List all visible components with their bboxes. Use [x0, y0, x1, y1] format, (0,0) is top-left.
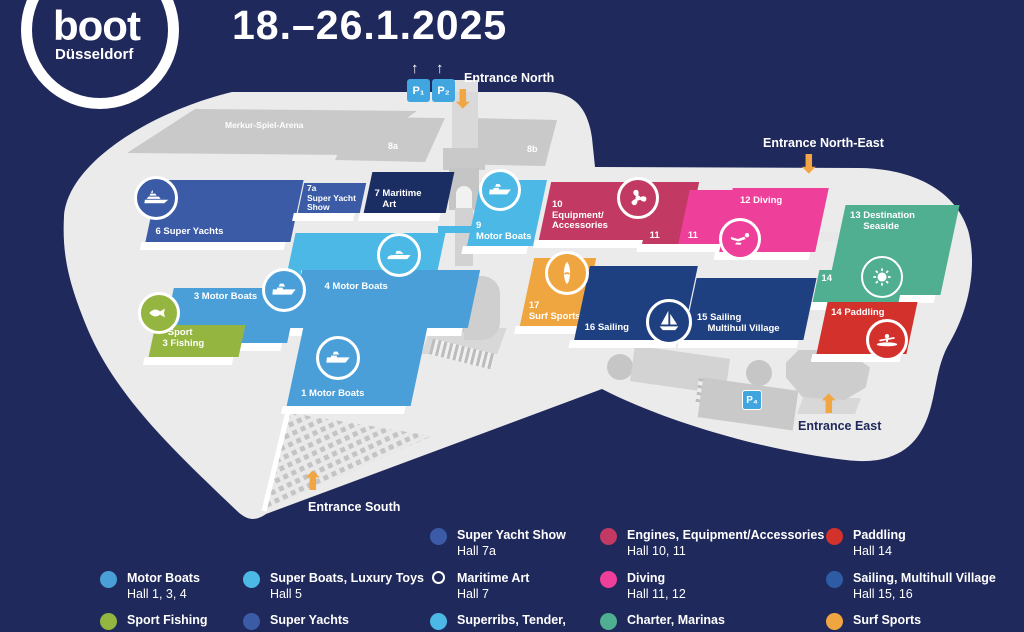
bridge-12-13 — [820, 232, 838, 241]
entrance-east-label: Entrance East — [798, 419, 881, 433]
p1-arrow-icon: ↑ — [411, 60, 419, 77]
hall-13-label: 13 Destination Seaside — [850, 211, 915, 232]
legend-dot-sport-fishing — [100, 613, 117, 630]
entrance-north-east-label: Entrance North-East — [763, 136, 884, 150]
motorboat-icon-hall9 — [479, 169, 521, 211]
hall-7-label: 7 Maritime Art — [375, 189, 422, 210]
legend-dot-super-yacht-show — [430, 528, 447, 545]
legend-dot-superribs — [430, 613, 447, 630]
hall-8a-label: 8a — [388, 141, 398, 151]
motorboat-icon-hall1 — [316, 336, 360, 380]
entrance-north-label: Entrance North — [464, 71, 554, 85]
legend-paddling: PaddlingHall 14 — [826, 527, 906, 559]
boot-duesseldorf-map: boot Düsseldorf 18.–26.1.2025 Merkur-Spi… — [0, 0, 1024, 632]
legend-dot-super-yachts — [243, 613, 260, 630]
tank-east — [746, 360, 772, 386]
fish-icon — [138, 292, 180, 334]
hall-16-label: 16 Sailing — [585, 323, 629, 334]
legend-super-yachts: Super Yachts — [243, 612, 349, 630]
p2-arrow-icon: ↑ — [436, 60, 444, 77]
surfboard-icon — [545, 251, 589, 295]
legend-surf-sports: Surf Sports — [826, 612, 921, 630]
propeller-icon — [617, 177, 659, 219]
hall-14-teal-label: 14 — [821, 274, 832, 285]
super-yacht-icon — [134, 176, 178, 220]
legend-engines-equipment: Engines, Equipment/AccessoriesHall 10, 1… — [600, 527, 824, 559]
legend-dot-engines — [600, 528, 617, 545]
entrance-south-arrow-icon: ⬆ — [302, 468, 324, 494]
legend-diving: DivingHall 11, 12 — [600, 570, 686, 602]
legend-super-yacht-show: Super Yacht ShowHall 7a — [430, 527, 566, 559]
legend-motor-boats: Motor BoatsHall 1, 3, 4 — [100, 570, 200, 602]
entrance-north-arrow-icon: ⬇ — [452, 86, 474, 112]
legend-maritime-art: Maritime ArtHall 7 — [430, 570, 529, 602]
hall-3-label: 3 Motor Boats — [194, 292, 257, 303]
parking-p4-badge: P₄ — [742, 390, 762, 410]
tank-west — [607, 354, 633, 380]
legend-super-boats: Super Boats, Luxury ToysHall 5 — [243, 570, 424, 602]
speedboat-icon — [377, 233, 421, 277]
hall-8b-label: 8b — [527, 144, 538, 154]
sailboat-icon — [646, 299, 692, 345]
arena-label: Merkur-Spiel-Arena — [225, 120, 303, 130]
legend-sailing-multihull: Sailing, Multihull VillageHall 15, 16 — [826, 570, 996, 602]
motorboat-icon-hall4 — [262, 268, 306, 312]
hall-7a-super-yacht-show: 7a Super Yacht Show — [298, 183, 366, 213]
hall-10-label: 10 Equipment/ Accessories — [552, 200, 608, 232]
legend-charter-marinas: Charter, Marinas — [600, 612, 725, 630]
hall-9-label: 9 Motor Boats — [476, 221, 531, 242]
legend-dot-charter — [600, 613, 617, 630]
service-block — [443, 148, 485, 170]
legend-superribs-tender: Superribs, Tender, — [430, 612, 566, 630]
legend-dot-paddling — [826, 528, 843, 545]
hall-12-label: 12 Diving — [740, 196, 782, 207]
legend-dot-diving — [600, 571, 617, 588]
hall-15-sailing-multihull: 15 Sailing Multihull Village — [683, 278, 816, 340]
sun-icon — [861, 256, 903, 298]
hall-11-west-label: 11 — [650, 231, 660, 242]
entrance-east-arrow-icon: ⬆ — [818, 391, 840, 417]
hall-1-label: 1 Motor Boats — [301, 389, 364, 400]
hall-7a-label: 7a Super Yacht Show — [307, 184, 356, 213]
hall-14-paddling-label: 14 Paddling — [831, 308, 884, 319]
hall-11-east-label: 11 — [688, 231, 698, 242]
tunnel-arch — [456, 186, 472, 210]
kayak-icon — [866, 319, 908, 361]
legend-dot-surf-sports — [826, 613, 843, 630]
legend-dot-motor-boats — [100, 571, 117, 588]
hall-6-label: 6 Super Yachts — [155, 227, 223, 238]
hall-7-maritime-art: 7 Maritime Art — [364, 172, 455, 213]
hall-4-label: 4 Motor Boats — [324, 282, 387, 293]
legend-dot-sailing — [826, 571, 843, 588]
entrance-north-east-arrow-icon: ⬇ — [798, 151, 820, 177]
hall-17-label: 17 Surf Sports — [529, 301, 581, 322]
legend-sport-fishing: Sport Fishing — [100, 612, 208, 630]
entrance-south-label: Entrance South — [308, 500, 400, 514]
parking-p1-badge: P₁ — [407, 79, 430, 102]
diver-icon — [719, 218, 761, 260]
legend-dot-maritime-art — [432, 571, 445, 584]
legend-dot-super-boats — [243, 571, 260, 588]
hall-15-label: 15 Sailing Multihull Village — [697, 313, 780, 334]
